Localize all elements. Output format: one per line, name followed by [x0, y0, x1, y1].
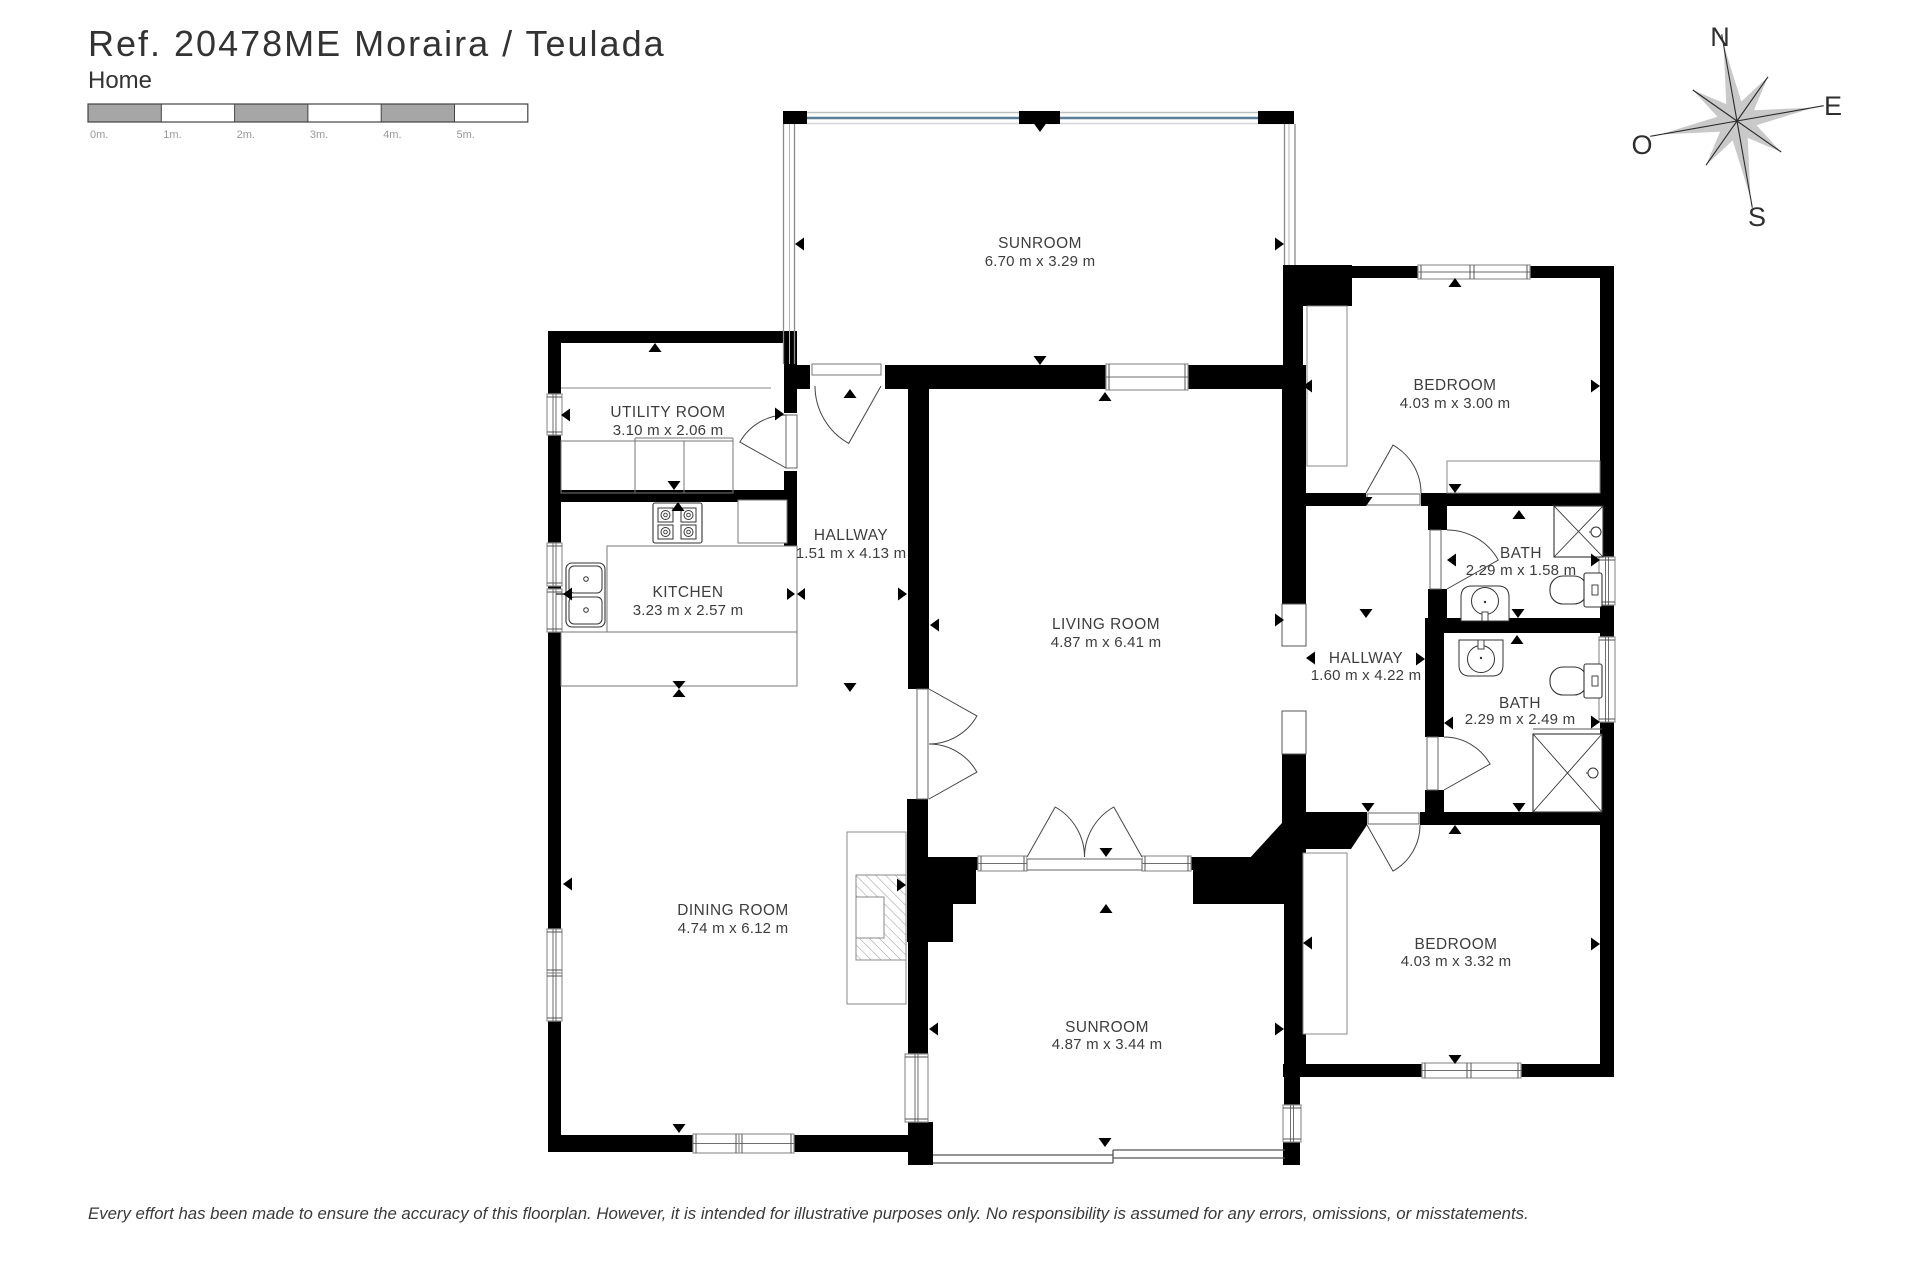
svg-text:4.03 m x 3.32 m: 4.03 m x 3.32 m	[1401, 953, 1512, 970]
svg-text:KITCHEN: KITCHEN	[652, 584, 723, 601]
svg-text:2m.: 2m.	[237, 129, 255, 141]
svg-text:Ref. 20478ME Moraira / Teulada: Ref. 20478ME Moraira / Teulada	[88, 23, 666, 64]
svg-text:4.03 m x 3.00 m: 4.03 m x 3.00 m	[1400, 395, 1511, 412]
svg-text:1.60 m x 4.22 m: 1.60 m x 4.22 m	[1311, 667, 1422, 684]
svg-text:3.10 m x 2.06 m: 3.10 m x 2.06 m	[613, 422, 724, 439]
svg-text:UTILITY ROOM: UTILITY ROOM	[610, 404, 725, 421]
svg-text:4.74 m x 6.12 m: 4.74 m x 6.12 m	[678, 920, 789, 937]
svg-text:Home: Home	[88, 67, 152, 94]
svg-text:2.29 m x 2.49 m: 2.29 m x 2.49 m	[1465, 711, 1576, 728]
svg-text:BATH: BATH	[1499, 695, 1541, 712]
svg-text:4.87 m x 3.44 m: 4.87 m x 3.44 m	[1052, 1036, 1163, 1053]
svg-text:E: E	[1824, 91, 1842, 121]
svg-text:BEDROOM: BEDROOM	[1414, 936, 1497, 953]
svg-text:3.23 m x 2.57 m: 3.23 m x 2.57 m	[633, 602, 744, 619]
svg-text:Every effort has been made to: Every effort has been made to ensure the…	[88, 1204, 1529, 1223]
svg-text:1m.: 1m.	[163, 129, 181, 141]
svg-text:4.87 m x 6.41 m: 4.87 m x 6.41 m	[1051, 634, 1162, 651]
svg-text:HALLWAY: HALLWAY	[814, 527, 888, 544]
svg-text:BATH: BATH	[1500, 545, 1542, 562]
svg-text:5m.: 5m.	[457, 129, 475, 141]
svg-text:DINING ROOM: DINING ROOM	[677, 902, 789, 919]
svg-text:0m.: 0m.	[90, 129, 108, 141]
svg-text:BEDROOM: BEDROOM	[1413, 377, 1496, 394]
svg-text:SUNROOM: SUNROOM	[998, 235, 1082, 252]
svg-text:LIVING ROOM: LIVING ROOM	[1052, 616, 1160, 633]
svg-text:S: S	[1748, 202, 1766, 232]
svg-text:6.70 m x 3.29 m: 6.70 m x 3.29 m	[985, 253, 1096, 270]
svg-text:1.51 m x 4.13 m: 1.51 m x 4.13 m	[796, 545, 907, 562]
svg-text:4m.: 4m.	[383, 129, 401, 141]
svg-text:N: N	[1710, 22, 1730, 52]
svg-text:HALLWAY: HALLWAY	[1329, 650, 1403, 667]
svg-text:3m.: 3m.	[310, 129, 328, 141]
svg-text:SUNROOM: SUNROOM	[1065, 1019, 1149, 1036]
svg-text:2.29 m x 1.58 m: 2.29 m x 1.58 m	[1466, 562, 1577, 579]
svg-text:O: O	[1631, 130, 1652, 160]
